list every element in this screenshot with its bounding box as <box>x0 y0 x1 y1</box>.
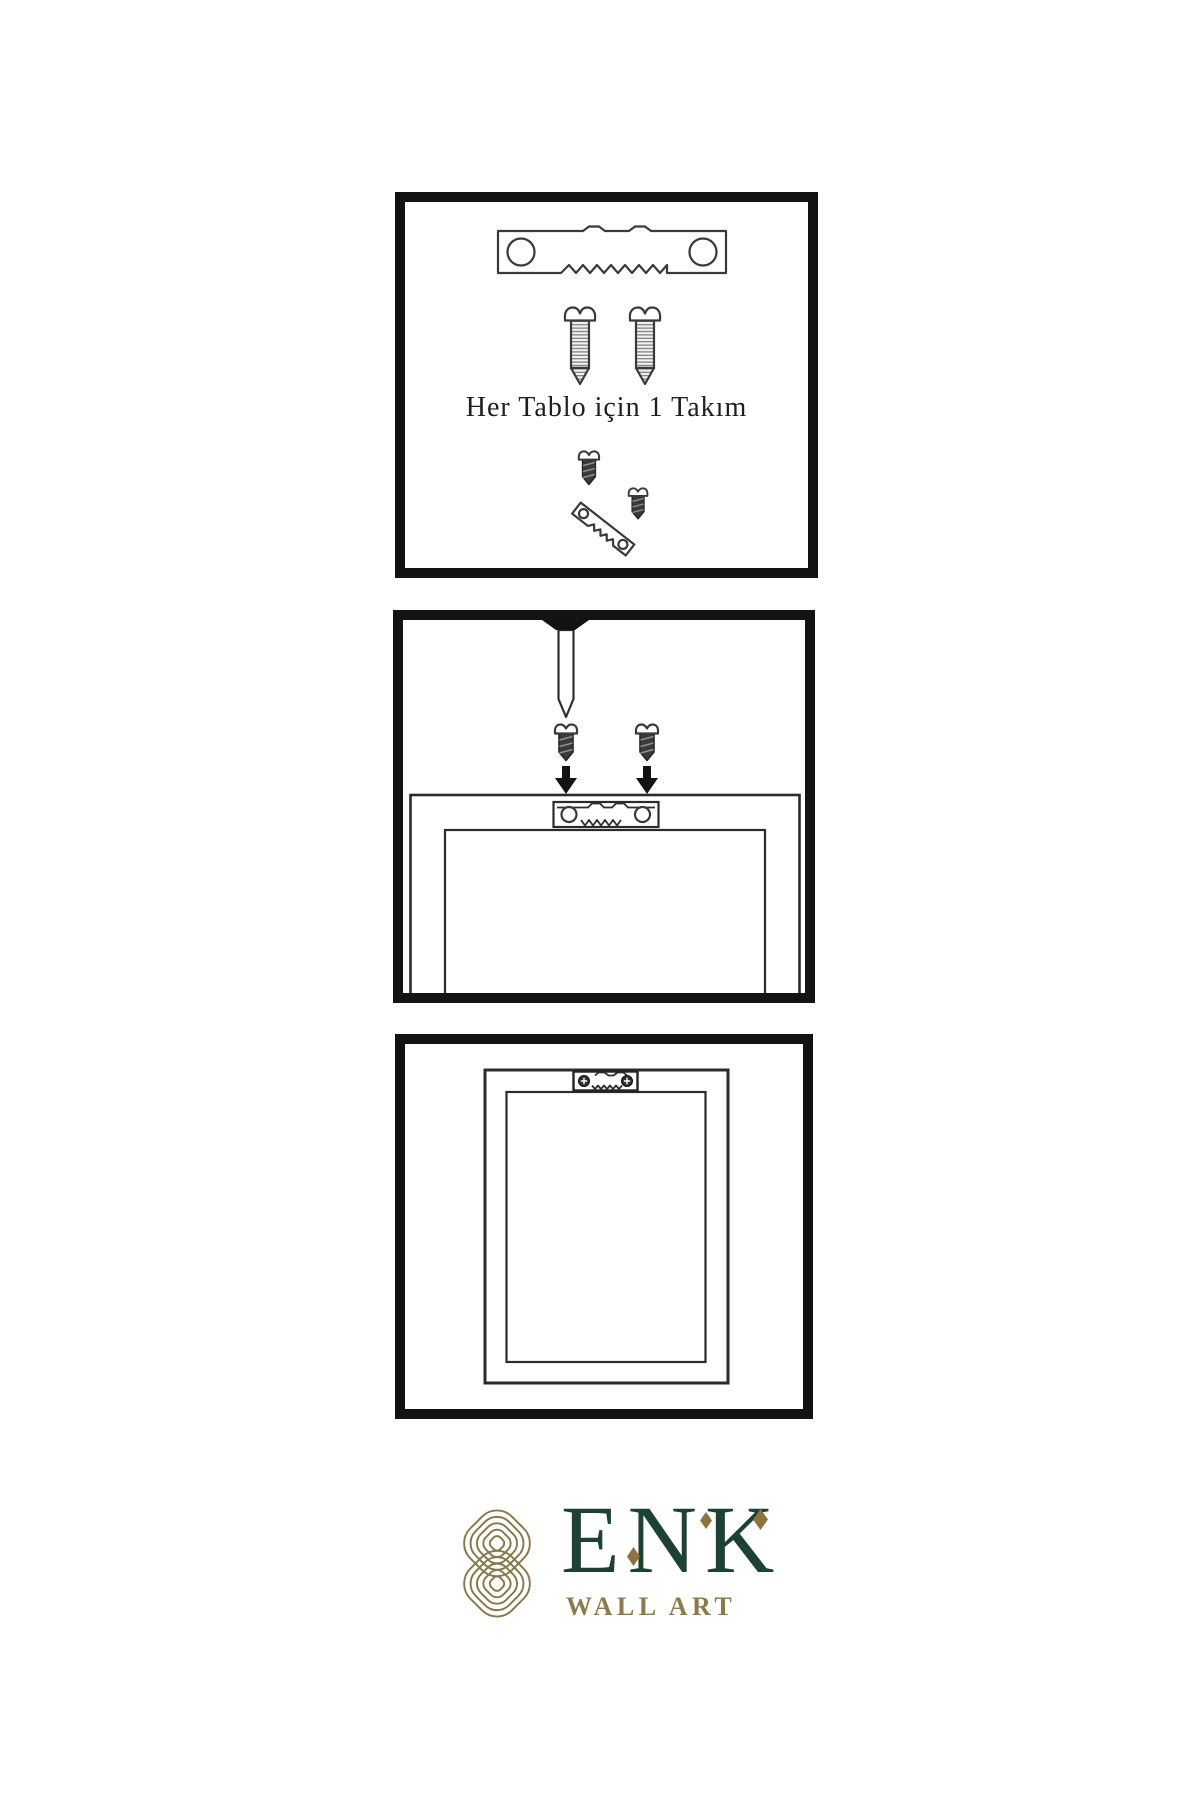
down-arrow-icon <box>555 766 577 794</box>
kit-caption: Her Tablo için 1 Takım <box>405 392 808 424</box>
brand-wordmark: ENK <box>561 1490 782 1591</box>
screw-icon <box>636 725 658 761</box>
install-illustration <box>403 620 805 993</box>
down-arrow-icon <box>636 766 658 794</box>
parts-illustration <box>405 202 808 568</box>
screw-icon <box>630 308 660 385</box>
screw-icon <box>555 725 577 761</box>
hung-frame-illustration <box>405 1044 803 1409</box>
brand-subtitle: WALL ART <box>566 1592 736 1622</box>
sawtooth-hanger-icon <box>498 227 726 274</box>
sawtooth-hanger-icon <box>554 802 659 827</box>
step-3-panel <box>395 1034 813 1419</box>
step-2-panel <box>393 610 815 1003</box>
instruction-sheet: Her Tablo için 1 Takım <box>0 0 1200 1800</box>
sawtooth-hanger-mounted-icon <box>574 1072 638 1091</box>
knot-icon <box>437 1500 557 1627</box>
screw-icon <box>565 308 595 385</box>
nail-icon <box>542 620 589 717</box>
hanger-kit-icon <box>572 451 647 555</box>
mounted-frame-icon <box>485 1070 728 1383</box>
step-1-panel: Her Tablo için 1 Takım <box>395 192 818 578</box>
